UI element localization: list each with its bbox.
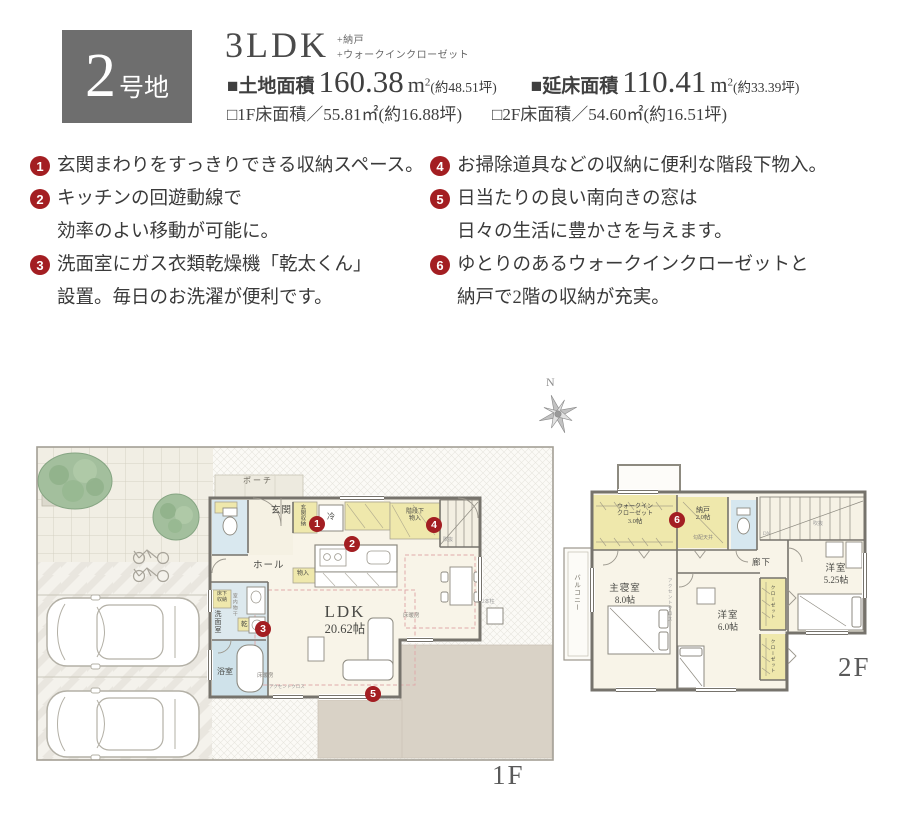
label-hall-storage: 物入 bbox=[297, 571, 309, 578]
feature-3-text-2: 設置。毎日のお洗濯が便利です。 bbox=[57, 282, 372, 315]
label-void: 吹抜 bbox=[443, 538, 453, 544]
total-label: 延床面積 bbox=[542, 76, 618, 97]
label-void: 吹抜 bbox=[813, 522, 823, 528]
desk-icon bbox=[697, 588, 715, 604]
label-storeroom: 納戸 2.0帖 bbox=[680, 506, 726, 522]
feature-1-text: 玄関まわりをすっきりできる収納スペース。 bbox=[57, 150, 424, 183]
label-bedroom3: 洋室 6.0帖 bbox=[698, 611, 758, 632]
label-porch: ポーチ bbox=[243, 476, 273, 485]
land-bullet: ■ bbox=[227, 76, 238, 97]
car-icon bbox=[47, 595, 199, 669]
label-closet: クローゼット bbox=[769, 639, 775, 674]
feature-2-text-1: キッチンの回遊動線で bbox=[57, 183, 279, 216]
total-area-group: ■延床面積110.41m2(約33.39坪) bbox=[527, 79, 800, 96]
label-underfloor-storage: 床下 収納 bbox=[214, 592, 230, 604]
plan-marker-2: 2 bbox=[344, 536, 360, 552]
feature-2-text-2: 効率のよい移動が可能に。 bbox=[57, 216, 279, 249]
plan-marker-4: 4 bbox=[426, 517, 442, 533]
label-wic: ウォークイン クローゼット 3.0帖 bbox=[596, 504, 674, 525]
plan-marker-1: 1 bbox=[309, 516, 325, 532]
feature-2-number: 2 bbox=[30, 189, 50, 209]
area-summary-line: ■土地面積160.38m2(約48.51坪) ■延床面積110.41m2(約33… bbox=[227, 64, 799, 100]
feature-5-text-2: 日々の生活に豊かさを与えます。 bbox=[457, 216, 733, 249]
tree-icon bbox=[38, 453, 112, 509]
floor-area-line: □1F床面積／55.81㎡(約16.88坪)□2F床面積／54.60㎡(約16.… bbox=[227, 100, 727, 125]
feature-1-number: 1 bbox=[30, 156, 50, 176]
land-tsubo: (約48.51坪) bbox=[430, 80, 496, 95]
kitchen-cabinet bbox=[345, 502, 390, 530]
terrace bbox=[400, 645, 552, 758]
bed-icon bbox=[678, 646, 704, 688]
feature-5-text-1: 日当たりの良い南向きの窓は bbox=[457, 183, 733, 216]
floor2-area: □2F床面積／54.60㎡(約16.51坪) bbox=[492, 105, 727, 124]
desk-icon bbox=[826, 542, 843, 557]
plan-extra-storeroom: +納戸 bbox=[337, 33, 469, 48]
compass-rose-icon: N bbox=[532, 372, 584, 442]
label-fridge: 冷 bbox=[327, 512, 335, 521]
label-entrance: 玄関 bbox=[271, 506, 292, 517]
label-hall: ホール bbox=[253, 561, 285, 572]
label-indoor-drying: 室内物干 bbox=[231, 593, 237, 617]
label-down: DN bbox=[763, 532, 770, 538]
feature-6-text-1: ゆとりのあるウォークインクローゼットと bbox=[457, 249, 809, 282]
terrace bbox=[318, 700, 402, 758]
feature-6-text-2: 納戸で2階の収納が充実。 bbox=[457, 282, 809, 315]
total-bullet: ■ bbox=[531, 76, 542, 97]
roof-projection bbox=[618, 465, 680, 492]
label-master-bedroom: 主寝室 8.0帖 bbox=[594, 584, 656, 605]
lot-number-badge: 2 号地 bbox=[62, 30, 192, 123]
floor1-plan: ポーチ 玄関 玄関収納 ホール 冷 階段下 物入 物入 床下 収納 洗面室 室内… bbox=[35, 445, 555, 763]
floor1-drawing bbox=[35, 445, 555, 763]
label-sloped-ceiling: 勾配天井 bbox=[680, 536, 726, 542]
bathtub-icon bbox=[237, 645, 263, 692]
label-bathroom: 浴室 bbox=[217, 667, 233, 676]
plan-marker-5: 5 bbox=[365, 686, 381, 702]
feature-1: 1 玄関まわりをすっきりできる収納スペース。 bbox=[30, 150, 424, 183]
car-icon bbox=[47, 688, 199, 760]
label-balcony: バルコニー bbox=[572, 574, 579, 612]
plan-marker-3: 3 bbox=[255, 621, 271, 637]
feature-5: 5 日当たりの良い南向きの窓は 日々の生活に豊かさを与えます。 bbox=[430, 183, 733, 249]
feature-4-number: 4 bbox=[430, 156, 450, 176]
plan-marker-6: 6 bbox=[669, 512, 685, 528]
compass-north-label: N bbox=[546, 375, 555, 389]
tree-icon bbox=[153, 494, 199, 540]
floor1-area: □1F床面積／55.81㎡(約16.88坪) bbox=[227, 105, 462, 124]
feature-3: 3 洗面室にガス衣類乾燥機「乾太くん」 設置。毎日のお洗濯が便利です。 bbox=[30, 249, 372, 315]
compass: N bbox=[532, 372, 584, 442]
total-tsubo: (約33.39坪) bbox=[733, 80, 799, 95]
land-value: 160.38 bbox=[319, 64, 404, 99]
toilet-icon bbox=[737, 508, 750, 534]
lot-number: 2 bbox=[85, 30, 116, 123]
label-ldk: LDK 20.62帖 bbox=[305, 602, 385, 636]
plan-extra-wic: +ウォークインクローゼット bbox=[337, 48, 469, 63]
coffee-table-icon bbox=[308, 637, 324, 661]
floor2-tag: 2F bbox=[838, 652, 871, 683]
feature-4-text: お掃除道具などの収納に便利な階段下物入。 bbox=[457, 150, 827, 183]
feature-3-number: 3 bbox=[30, 255, 50, 275]
label-accent-cloth: アクセントクロス bbox=[668, 578, 673, 622]
feature-4: 4 お掃除道具などの収納に便利な階段下物入。 bbox=[430, 150, 827, 183]
plan-extras: +納戸 +ウォークインクローゼット bbox=[337, 33, 469, 63]
label-two-pillars: 2本柱 bbox=[482, 600, 495, 606]
plan-type: 3LDK bbox=[225, 24, 329, 66]
label-bedroom2: 洋室 5.25帖 bbox=[805, 564, 867, 585]
label-floor-heating: 床暖房 bbox=[403, 613, 420, 619]
label-accent-cloth: アクセントクロス bbox=[269, 684, 305, 689]
label-corridor: 廊下 bbox=[752, 558, 771, 568]
land-area-group: ■土地面積160.38m2(約48.51坪) bbox=[227, 79, 501, 96]
label-entrance-storage: 玄関収納 bbox=[299, 504, 305, 526]
porch-pillars bbox=[487, 608, 503, 624]
label-dryer: 乾 bbox=[241, 621, 248, 628]
land-label: 土地面積 bbox=[238, 76, 314, 97]
total-unit: m bbox=[710, 72, 727, 97]
label-floor-heating: 床暖房 bbox=[257, 673, 274, 679]
rear-yard-hatch bbox=[212, 697, 280, 758]
feature-6-number: 6 bbox=[430, 255, 450, 275]
kitchen-counter bbox=[315, 545, 397, 587]
bed-icon bbox=[798, 594, 863, 630]
toilet-icon bbox=[223, 508, 237, 535]
total-value: 110.41 bbox=[622, 64, 706, 99]
feature-2: 2 キッチンの回遊動線で 効率のよい移動が可能に。 bbox=[30, 183, 279, 249]
stairs2 bbox=[760, 497, 865, 540]
bed-icon bbox=[608, 606, 670, 654]
label-closet: クローゼット bbox=[769, 585, 775, 620]
feature-6: 6 ゆとりのあるウォークインクローゼットと 納戸で2階の収納が充実。 bbox=[430, 249, 809, 315]
lot-suffix: 号地 bbox=[119, 49, 169, 129]
land-unit: m bbox=[408, 72, 425, 97]
flyer-page: 2 号地 3LDK +納戸 +ウォークインクローゼット ■土地面積160.38m… bbox=[0, 0, 900, 819]
label-washroom: 洗面室 bbox=[214, 610, 222, 634]
floor1-tag: 1F bbox=[492, 760, 525, 791]
feature-5-number: 5 bbox=[430, 189, 450, 209]
feature-3-text-1: 洗面室にガス衣類乾燥機「乾太くん」 bbox=[57, 249, 372, 282]
